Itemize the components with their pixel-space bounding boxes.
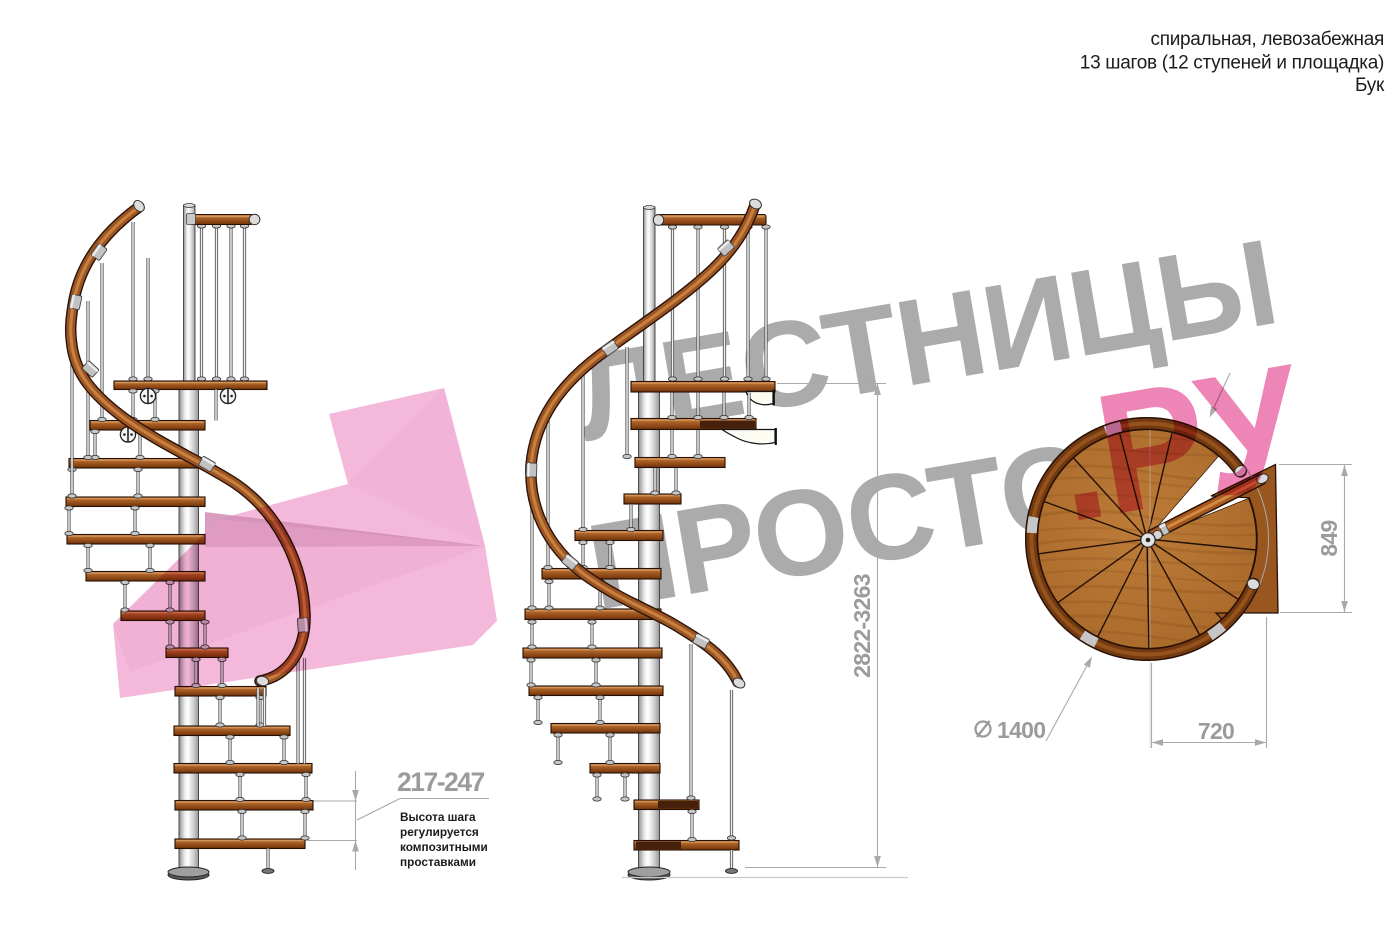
svg-text:Высота шага: Высота шага bbox=[400, 810, 476, 824]
svg-text:спиральная, левозабежная: спиральная, левозабежная bbox=[1151, 29, 1384, 50]
svg-text:Бук: Бук bbox=[1355, 75, 1385, 96]
svg-text:регулируется: регулируется bbox=[400, 825, 479, 839]
svg-text:1400: 1400 bbox=[997, 717, 1045, 743]
svg-text:проставками: проставками bbox=[400, 855, 476, 869]
svg-text:композитными: композитными bbox=[400, 840, 488, 854]
svg-text:13 шагов (12 ступеней и площад: 13 шагов (12 ступеней и площадка) bbox=[1080, 53, 1384, 74]
svg-text:2822-3263: 2822-3263 bbox=[849, 574, 875, 678]
svg-text:849: 849 bbox=[1316, 520, 1342, 556]
svg-text:720: 720 bbox=[1198, 718, 1234, 744]
svg-text:217-247: 217-247 bbox=[397, 767, 485, 797]
